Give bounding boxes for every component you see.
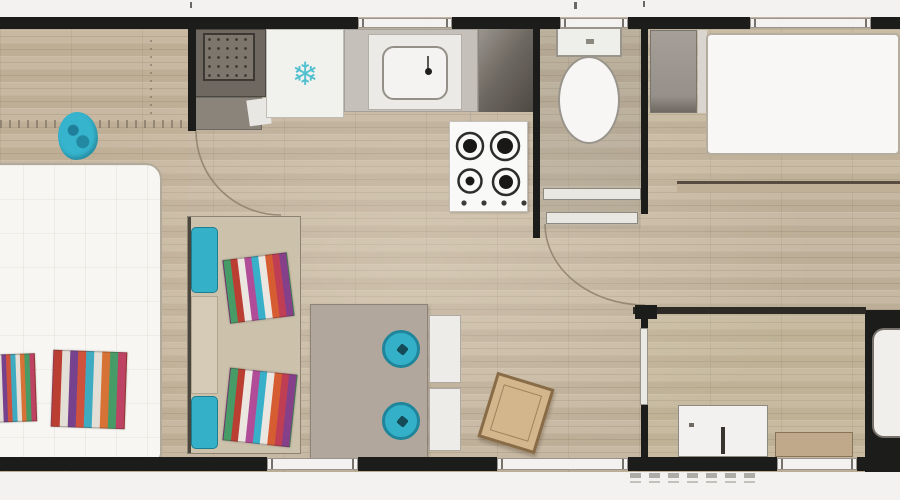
step-mark (706, 473, 717, 485)
window-bottom-2 (497, 458, 628, 470)
single-bed-top-right (706, 33, 900, 155)
bathroom-door-arc (545, 224, 645, 305)
tick-mark (574, 2, 577, 9)
bed-pillow-1 (0, 353, 37, 422)
snowflake-icon: ❄ (292, 58, 319, 90)
step-mark (649, 473, 660, 485)
step-mark (725, 473, 736, 485)
teal-beanbag (58, 112, 98, 160)
toilet-bowl (558, 56, 620, 144)
fridge-freezer: ❄ (266, 29, 344, 118)
wall-bottom-4 (857, 457, 900, 471)
wall-bottom-1 (0, 457, 267, 471)
tick-mark (190, 2, 192, 8)
window-top-3 (750, 18, 871, 28)
window-top-1 (358, 18, 452, 28)
wall-bottom-3 (628, 457, 777, 471)
bathroom-door-threshold-1 (543, 188, 641, 200)
sofa-armrest-bottom (191, 396, 218, 449)
wall-bedroom-kitchen (188, 29, 196, 131)
teal-stool-1 (382, 330, 420, 368)
burner (499, 175, 513, 189)
knob (521, 200, 526, 205)
burner (463, 139, 477, 153)
hob-burners (450, 122, 529, 213)
window-bottom-1 (267, 458, 358, 470)
toilet-tank (556, 27, 622, 57)
open-door-leaf (640, 328, 648, 405)
gas-stove (449, 121, 528, 212)
tick-mark (643, 1, 645, 7)
dining-chair-2 (429, 388, 461, 451)
step-mark (630, 473, 641, 485)
knob (501, 200, 506, 205)
bedroom-door-arc (196, 131, 281, 215)
bed-pillow-2 (51, 350, 128, 430)
sink-basin (382, 46, 448, 100)
wall-top-2 (452, 17, 560, 29)
step-mark (744, 473, 755, 485)
wall-bedroom-br-top (633, 307, 866, 314)
burner (466, 177, 475, 186)
wardrobe (650, 30, 697, 113)
bed-niche (872, 328, 900, 438)
wall-bottom-2 (358, 457, 497, 471)
wall-top-4 (871, 17, 900, 29)
wall-bedroom-br-left-bottom (641, 404, 648, 462)
counter-hob-unit (203, 33, 255, 81)
wall-top-3 (628, 17, 750, 29)
dining-chair-1 (429, 315, 461, 383)
window-bottom-3 (777, 458, 857, 470)
storage-bench (775, 432, 853, 457)
sofa-pillow-2 (222, 368, 297, 448)
step-mark (687, 473, 698, 485)
sofa-pillow-1 (222, 252, 294, 323)
knob (461, 200, 466, 205)
wall-bathroom-right (641, 29, 648, 214)
wall-bedroom-br-left-top (641, 307, 648, 328)
sofa-armrest-top (191, 227, 218, 293)
window-top-2 (560, 18, 628, 28)
sofa-seat-middle (191, 296, 218, 394)
teal-stool-2 (382, 402, 420, 440)
wall-bathroom-left (533, 29, 540, 238)
dresser (678, 405, 768, 457)
glass-panel (478, 29, 534, 112)
bathroom-door-threshold-2 (546, 212, 638, 224)
bed-platform-edge (677, 181, 900, 192)
burner (497, 138, 513, 154)
entry-steps (630, 473, 770, 487)
knob (481, 200, 486, 205)
wall-top-1 (0, 17, 358, 29)
step-mark (668, 473, 679, 485)
floorplan-image: ❄ (0, 0, 900, 500)
